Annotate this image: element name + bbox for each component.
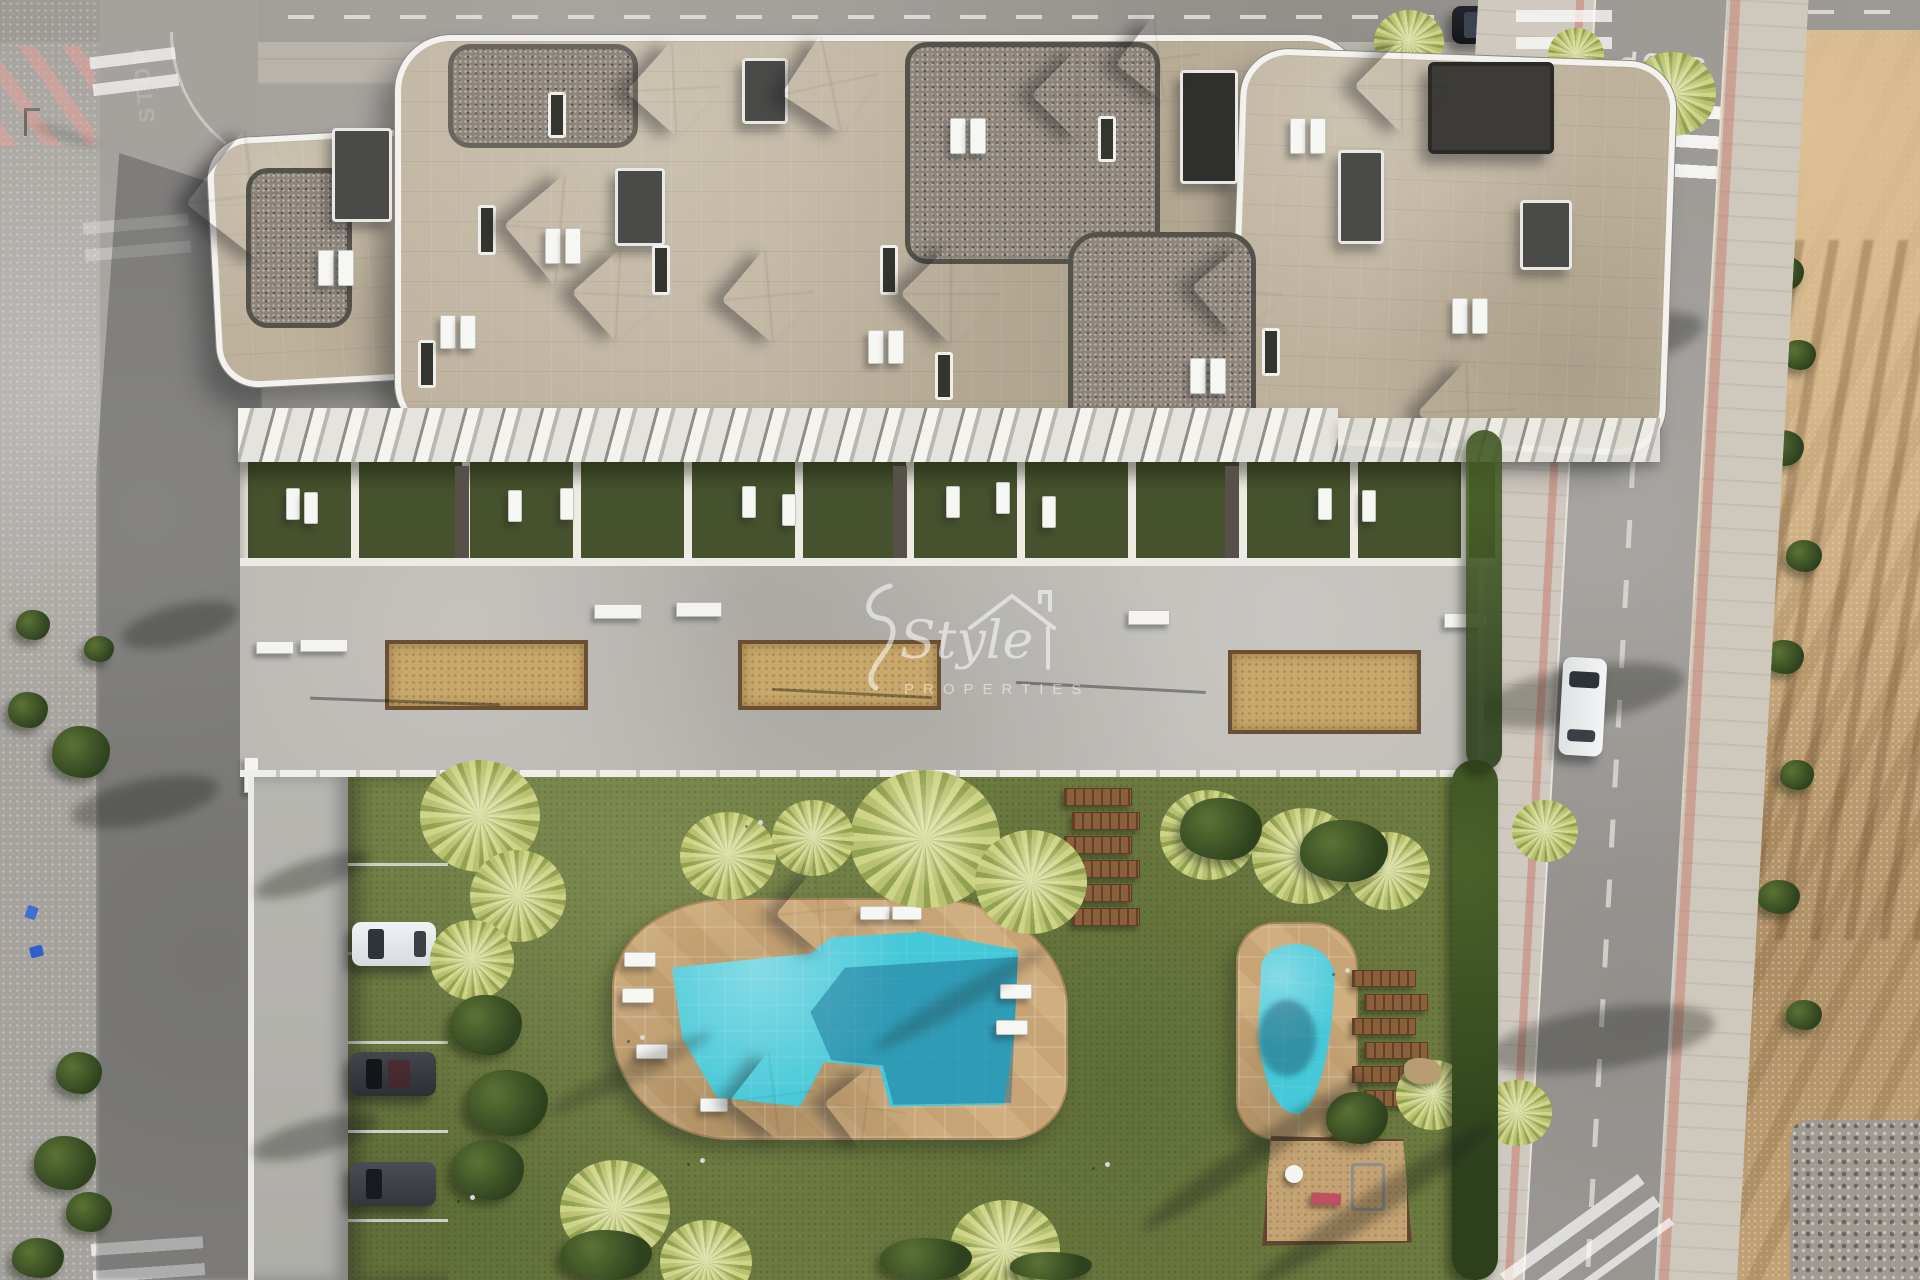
- dirt-shrub: [1786, 540, 1822, 572]
- garden-bush: [452, 1140, 524, 1200]
- watermark-script-text: Style: [900, 611, 1033, 671]
- stair-bulkhead: [1180, 70, 1238, 184]
- terrace-lounger: [742, 486, 756, 518]
- dirt-shrub: [1786, 1000, 1822, 1030]
- pool-lounger: [1000, 984, 1032, 999]
- terrace-lounger: [560, 488, 574, 520]
- garden-bush: [560, 1230, 652, 1280]
- wooden-lounger: [1352, 1018, 1416, 1035]
- sun-lounger: [1452, 298, 1468, 334]
- roadside-bush: [34, 1136, 96, 1190]
- terrace-lounger: [1042, 496, 1056, 528]
- car-roof: [388, 1060, 410, 1088]
- wooden-lounger: [1364, 994, 1428, 1011]
- sun-lounger: [1472, 298, 1488, 334]
- pool-lounger: [700, 1098, 728, 1112]
- white-car-right-street: [1558, 657, 1607, 757]
- path-light: [1105, 1162, 1110, 1167]
- skylight-slot: [548, 92, 566, 138]
- skylight-slot: [880, 245, 898, 295]
- white-car-windshield: [1569, 671, 1600, 689]
- terrace-lounger: [508, 490, 522, 522]
- roadside-bush: [16, 610, 50, 640]
- access-ramp: [248, 777, 348, 1280]
- car-windshield: [366, 1169, 382, 1199]
- dark-parked-car: [350, 1162, 436, 1206]
- skylight-slot: [1098, 116, 1116, 162]
- sun-lounger: [888, 330, 904, 364]
- terrace-lounger: [782, 494, 796, 526]
- zigzag-canopy: [238, 408, 1338, 462]
- garden-bush: [1180, 798, 1262, 860]
- roadside-bush: [56, 1052, 102, 1094]
- pool-lounger: [996, 1020, 1028, 1035]
- garden-bush: [450, 995, 522, 1055]
- path-light: [640, 1035, 645, 1040]
- ground-terraces: [240, 462, 1495, 562]
- fitness-parasol: [1285, 1165, 1303, 1183]
- dirt-shrub: [1758, 880, 1800, 914]
- pool-lounger: [622, 988, 654, 1003]
- rubble-rocks: [1790, 1120, 1920, 1280]
- sun-lounger: [318, 250, 334, 286]
- plaza-bench: [256, 641, 294, 654]
- terrace-lounger: [946, 486, 960, 518]
- aerial-render: STOP STOP: [0, 0, 1920, 1280]
- skylight-slot: [418, 340, 436, 388]
- sun-lounger: [1310, 118, 1326, 154]
- stair-bulkhead: [1338, 150, 1384, 244]
- plaza-bench: [594, 604, 642, 619]
- garden-palm: [680, 812, 776, 900]
- roadside-bush: [8, 692, 48, 728]
- street-lamp-arm: [24, 108, 40, 111]
- wooden-lounger: [1352, 970, 1416, 987]
- pink-bench: [1311, 1192, 1342, 1206]
- sun-lounger: [868, 330, 884, 364]
- dark-parked-car: [350, 1052, 436, 1096]
- garden-bush: [880, 1238, 972, 1280]
- dirt-shrub: [1780, 760, 1814, 790]
- small-pool-shadow: [1258, 1000, 1316, 1076]
- terrace-lounger: [1362, 490, 1376, 522]
- terrace-divider-pier: [455, 466, 469, 560]
- plaza-bottom-rail: [240, 770, 1484, 777]
- stair-bulkhead: [332, 128, 392, 222]
- script-flourish: [869, 586, 893, 688]
- garden-palm: [430, 920, 514, 1000]
- roadside-bush: [66, 1192, 112, 1232]
- white-car-rear-window: [1567, 729, 1596, 743]
- palm-tree: [1512, 800, 1578, 862]
- skylight-slot: [935, 352, 953, 400]
- watermark: Style PROPERTIES: [852, 572, 1082, 712]
- plaza-bench: [676, 602, 722, 617]
- sun-lounger: [565, 228, 581, 264]
- garden-step: [1072, 812, 1140, 830]
- path-light: [470, 1195, 475, 1200]
- pool-lounger: [624, 952, 656, 967]
- terrace-lounger: [286, 488, 300, 520]
- garden-palm: [772, 800, 854, 876]
- car-rear-window: [414, 931, 426, 957]
- roof-gravel-patch: [905, 42, 1160, 264]
- street-lamp: [24, 108, 27, 136]
- sun-lounger: [950, 118, 966, 154]
- garden-rock: [1404, 1058, 1442, 1084]
- terrace-lounger: [304, 492, 318, 524]
- wooden-lounger: [1364, 1042, 1428, 1059]
- terraces-bottom-rail: [240, 558, 1495, 566]
- sun-lounger: [460, 315, 476, 349]
- garden-palm: [975, 830, 1087, 934]
- white-parked-car: [352, 922, 436, 966]
- roof-gravel-patch: [448, 44, 638, 148]
- roadside-hedge: [1466, 430, 1502, 770]
- sand-planter: [1228, 650, 1421, 734]
- sun-lounger: [970, 118, 986, 154]
- sun-lounger: [545, 228, 561, 264]
- stair-bulkhead: [615, 168, 665, 246]
- terrace-divider-pier: [893, 466, 907, 560]
- path-light: [700, 1158, 705, 1163]
- ramp-railing: [248, 777, 254, 1280]
- car-windshield: [366, 1059, 382, 1089]
- garden-step: [1072, 908, 1140, 926]
- garden-bush: [1010, 1252, 1092, 1280]
- stair-bulkhead: [742, 58, 788, 124]
- sun-lounger: [338, 250, 354, 286]
- terrace-lounger: [1318, 488, 1332, 520]
- skylight-slot: [478, 205, 496, 255]
- path-light: [758, 820, 763, 825]
- car-windshield: [368, 929, 384, 959]
- watermark-caps-text: PROPERTIES: [904, 681, 1082, 698]
- roadside-hedge: [1452, 760, 1498, 1280]
- terrace-lounger: [996, 482, 1010, 514]
- sun-lounger: [1290, 118, 1306, 154]
- plaza-bench: [300, 639, 348, 652]
- pool-lounger: [860, 906, 890, 920]
- plaza-bench: [1128, 610, 1170, 625]
- pool-lounger: [892, 906, 922, 920]
- roadside-bush: [12, 1238, 64, 1278]
- top-road-center-line: [232, 15, 1502, 19]
- garden-bush: [1300, 820, 1388, 882]
- garden-step: [1064, 788, 1132, 806]
- sun-lounger: [1210, 358, 1226, 394]
- garden-bush: [466, 1070, 548, 1136]
- terrace-divider-pier: [1225, 466, 1239, 560]
- roadside-bush: [52, 726, 110, 778]
- roof-dark-box: [1428, 62, 1554, 154]
- path-light: [1345, 968, 1350, 973]
- sun-lounger: [440, 315, 456, 349]
- stair-bulkhead: [1520, 200, 1572, 270]
- skylight-slot: [1262, 328, 1280, 376]
- roadside-bush: [84, 636, 114, 662]
- sun-lounger: [1190, 358, 1206, 394]
